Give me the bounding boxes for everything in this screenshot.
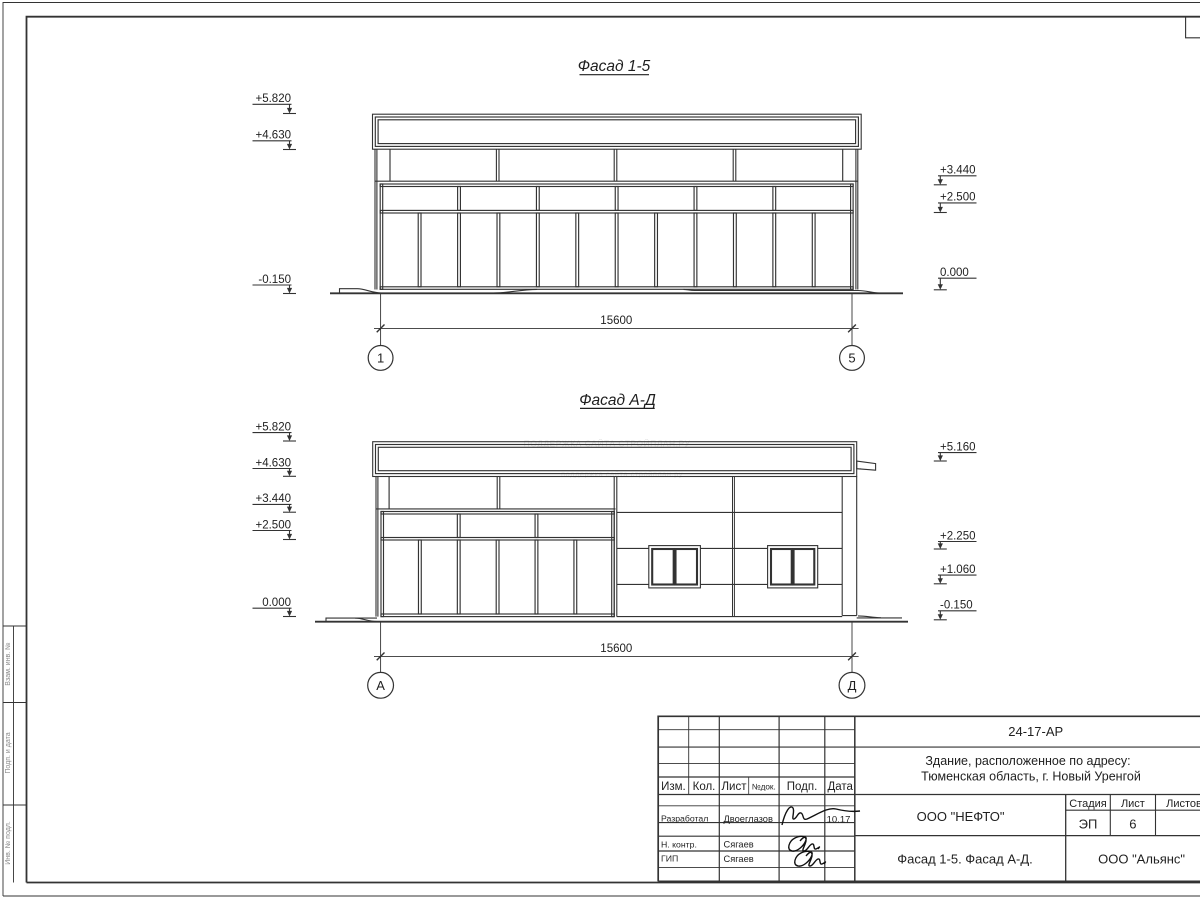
svg-text:10.17: 10.17 [827, 814, 851, 825]
svg-text:-0.150: -0.150 [940, 600, 973, 612]
svg-text:0.000: 0.000 [940, 267, 969, 279]
svg-text:Тюменская область, г. Новый Ур: Тюменская область, г. Новый Уренгой [921, 769, 1141, 783]
svg-text:ЭП: ЭП [1079, 817, 1098, 832]
svg-text:+3.440: +3.440 [940, 165, 976, 177]
svg-text:-0.150: -0.150 [258, 274, 291, 286]
svg-text:Лист: Лист [1121, 798, 1145, 810]
svg-text:+1.060: +1.060 [940, 564, 976, 576]
svg-text:Лист: Лист [722, 781, 748, 793]
svg-text:Н. контр.: Н. контр. [661, 839, 697, 849]
svg-text:15600: 15600 [600, 643, 632, 655]
svg-text:0.000: 0.000 [262, 597, 291, 609]
svg-text:Взам. инв. №: Взам. инв. № [5, 642, 12, 685]
svg-text:Дата: Дата [827, 781, 853, 793]
svg-text:Подп. и дата: Подп. и дата [5, 732, 12, 773]
svg-text:Кол.: Кол. [693, 781, 716, 793]
svg-text:Стадия: Стадия [1069, 798, 1107, 810]
svg-text:Здание, расположенное по адрес: Здание, расположенное по адресу: [925, 754, 1130, 768]
svg-text:+5.820: +5.820 [256, 93, 292, 105]
svg-text:+2.250: +2.250 [940, 530, 976, 542]
svg-text:5: 5 [848, 351, 855, 366]
svg-text:1: 1 [377, 351, 384, 366]
svg-text:Листов: Листов [1166, 798, 1200, 810]
svg-text:+2.500: +2.500 [256, 519, 292, 531]
svg-text:+5.820: +5.820 [256, 421, 292, 433]
svg-text:Разработал: Разработал [661, 814, 708, 824]
svg-text:ООО "НЕФТО": ООО "НЕФТО" [917, 809, 1005, 824]
svg-text:ГИП: ГИП [661, 854, 678, 864]
svg-text:Фасад 1-5: Фасад 1-5 [578, 58, 651, 75]
svg-text:+4.630: +4.630 [256, 130, 292, 142]
svg-text:Инв. № подл.: Инв. № подл. [5, 821, 12, 865]
svg-text:Фасад А-Д: Фасад А-Д [579, 392, 656, 409]
svg-text:Сягаев: Сягаев [724, 854, 754, 864]
svg-text:Подп.: Подп. [787, 781, 818, 793]
svg-text:+3.440: +3.440 [256, 493, 292, 505]
svg-text:Изм.: Изм. [661, 781, 686, 793]
svg-text:№док.: №док. [752, 782, 776, 791]
svg-text:+4.630: +4.630 [256, 457, 292, 469]
svg-text:+5.160: +5.160 [940, 441, 976, 453]
svg-text:Двоеглазов: Двоеглазов [724, 814, 773, 824]
svg-text:+2.500: +2.500 [940, 192, 976, 204]
svg-text:6: 6 [1129, 817, 1136, 832]
svg-text:24-17-АР: 24-17-АР [1008, 724, 1063, 739]
svg-text:Фасад 1-5. Фасад А-Д.: Фасад 1-5. Фасад А-Д. [897, 852, 1033, 867]
svg-text:А: А [376, 678, 385, 693]
svg-text:15600: 15600 [600, 315, 632, 327]
svg-text:Д: Д [848, 678, 857, 693]
svg-text:ООО "Альянс": ООО "Альянс" [1098, 852, 1185, 867]
svg-text:Сягаев: Сягаев [724, 840, 754, 850]
